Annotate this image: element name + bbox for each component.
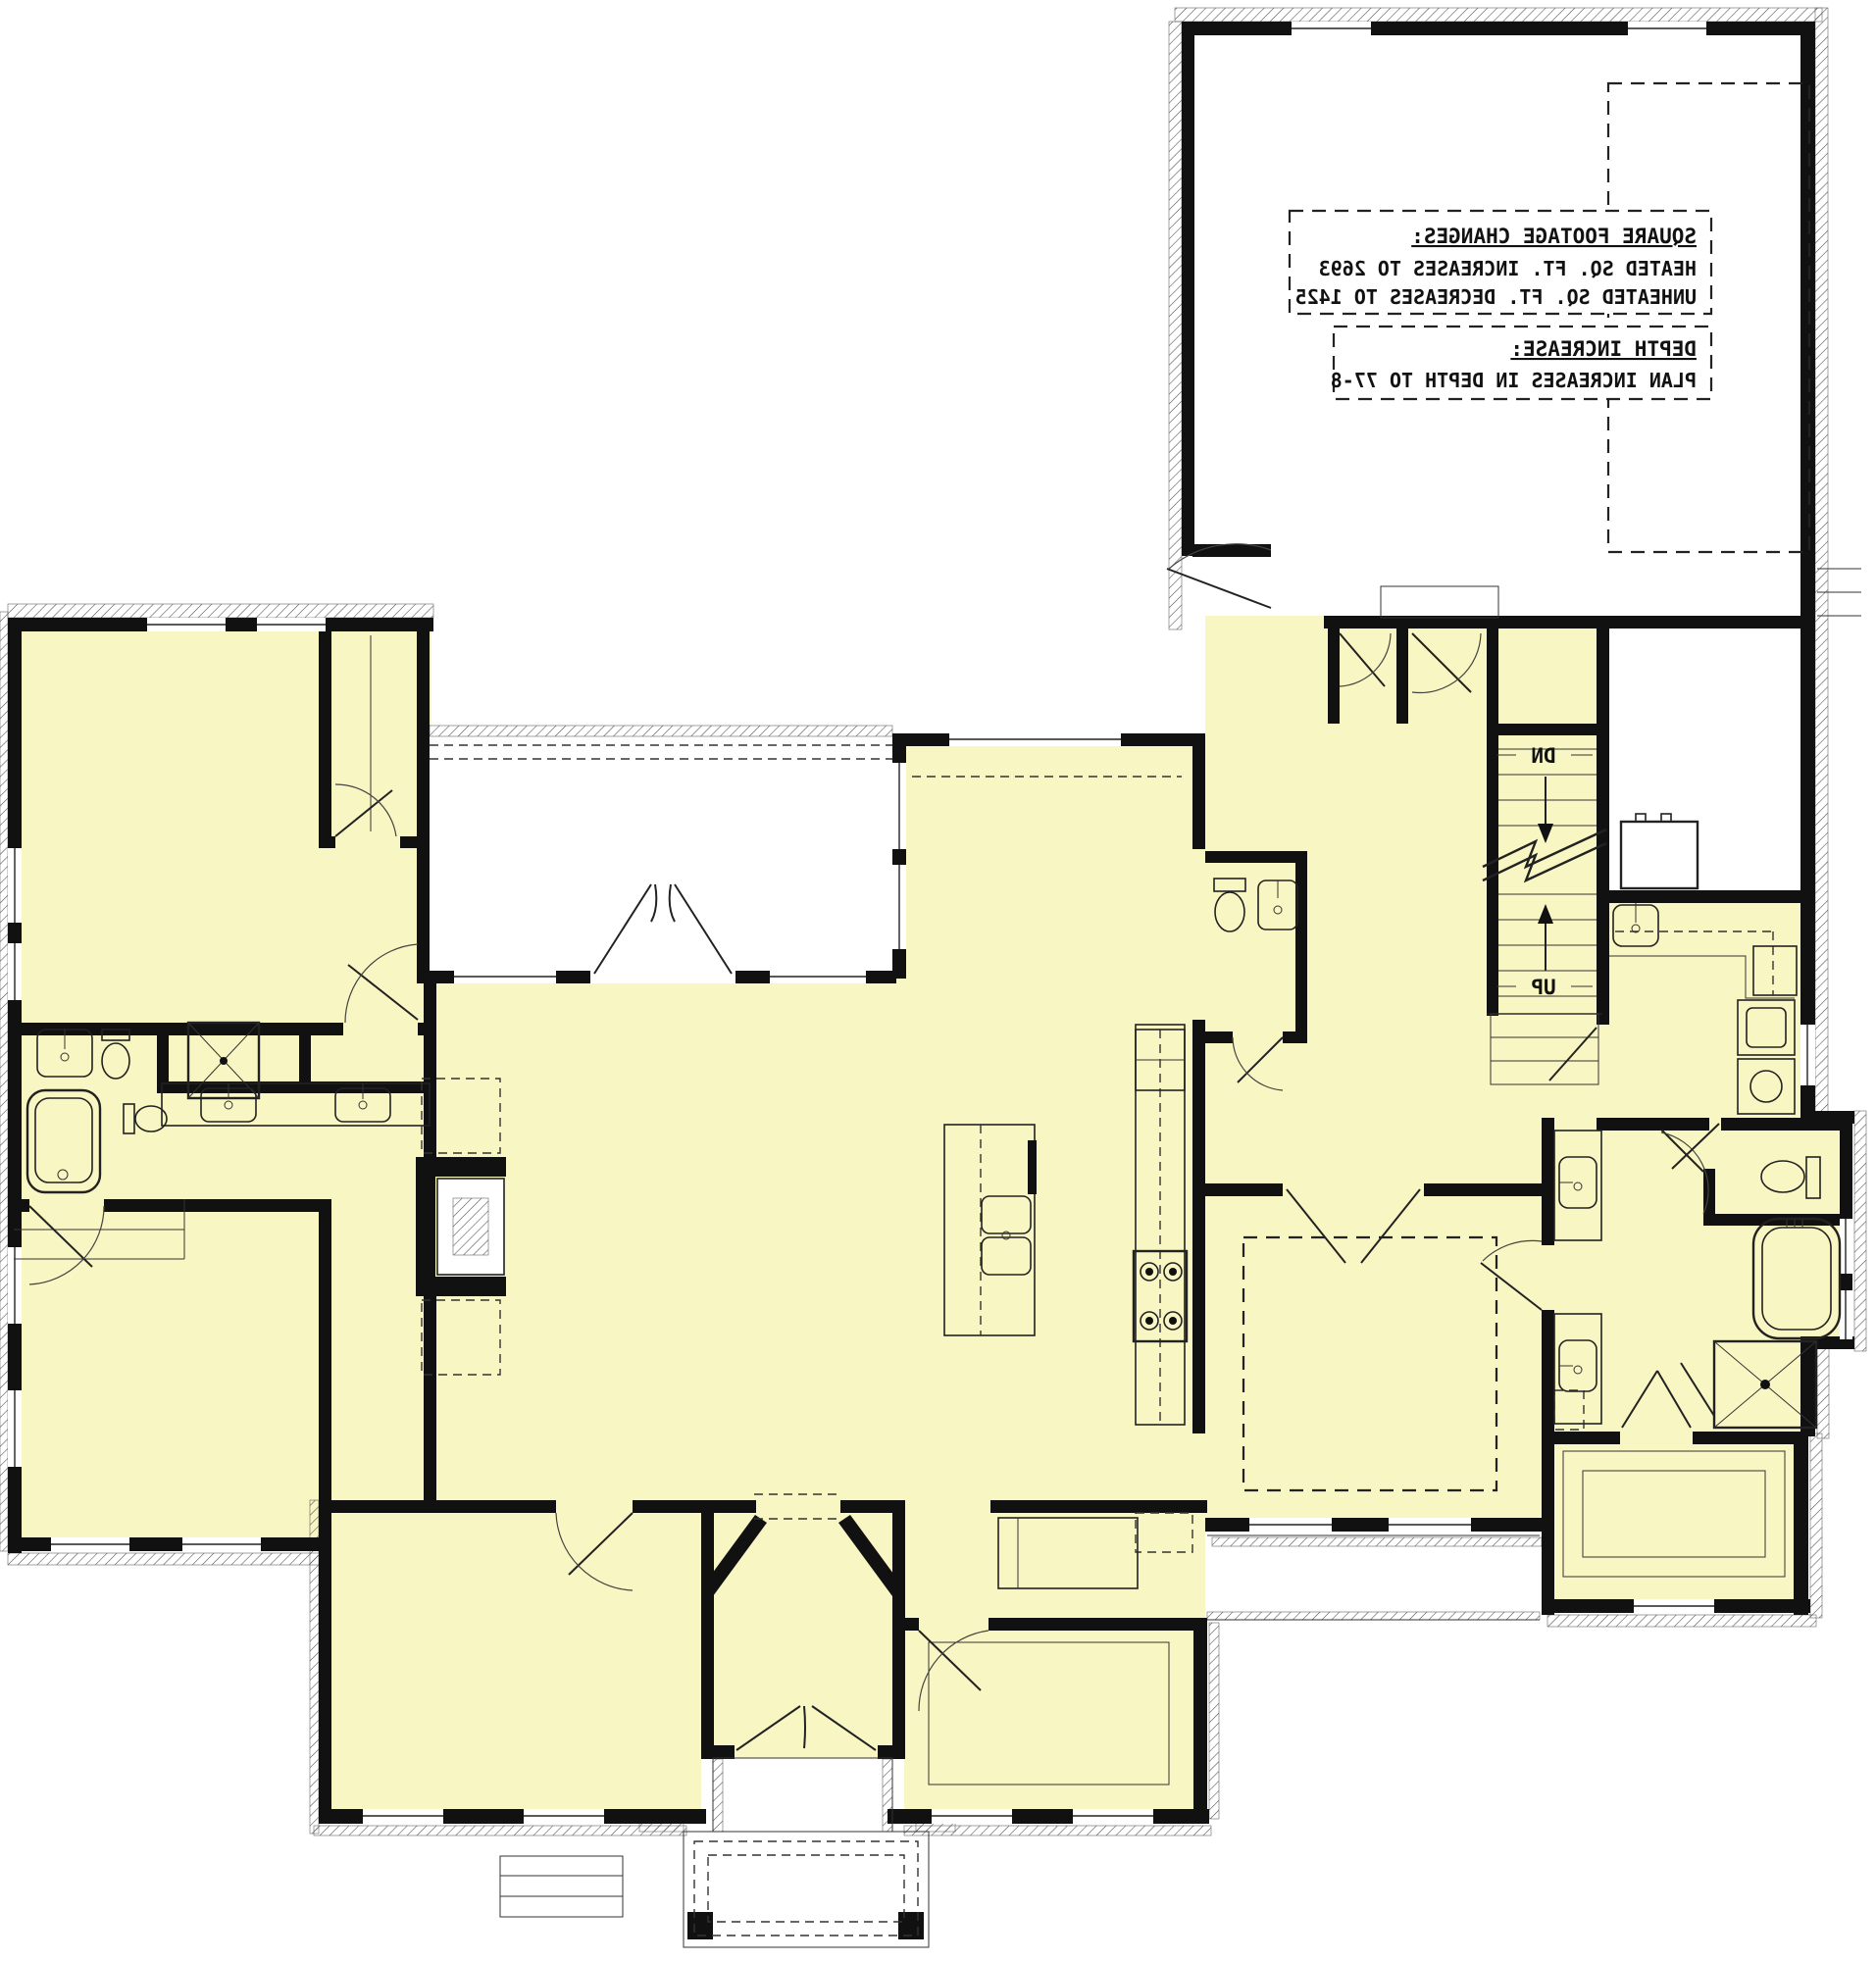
window: [363, 1809, 443, 1824]
window: [770, 971, 866, 983]
window: [1840, 1290, 1852, 1339]
window: [8, 1390, 22, 1467]
depth-line1: PLAN INCREASES IN DEPTH TO 77-8: [1331, 369, 1697, 392]
window: [147, 618, 226, 631]
svg-text:UP: UP: [1531, 976, 1555, 999]
window: [1249, 1518, 1332, 1532]
window: [932, 1809, 1012, 1824]
garage-area: [1189, 29, 1806, 616]
sqft-line1: HEATED SQ. FT. INCREASES TO 2693: [1319, 257, 1697, 280]
depth-increase-box: DEPTH INCREASE: PLAN INCREASES IN DEPTH …: [1331, 327, 1711, 399]
depth-heading: DEPTH INCREASE:: [1510, 337, 1697, 361]
window: [892, 763, 906, 849]
window: [8, 848, 22, 923]
window: [524, 1809, 604, 1824]
window: [1800, 1025, 1815, 1085]
floor-plan-page: DN UP: [0, 0, 1876, 1961]
french-door-opening: [590, 971, 735, 983]
square-footage-box: SQUARE FOOTAGE CHANGES: HEATED SQ. FT. I…: [1290, 211, 1711, 314]
window: [182, 1537, 261, 1551]
window: [1634, 1599, 1714, 1613]
rear-porch: [430, 726, 892, 971]
sqft-heading: SQUARE FOOTAGE CHANGES:: [1411, 225, 1697, 248]
mechanical-room: [1602, 628, 1808, 897]
window: [1840, 1219, 1852, 1274]
stair-dn-label: DN: [1531, 744, 1555, 768]
front-porch-recess: [713, 1758, 892, 1832]
stair-up-label: UP: [1531, 976, 1555, 999]
window: [1073, 1809, 1153, 1824]
sqft-line2: UNHEATED SQ. FT. DECREASES TO 1425: [1295, 285, 1697, 309]
window: [1389, 1518, 1471, 1532]
window: [454, 971, 556, 983]
window: [8, 943, 22, 1000]
window: [257, 618, 326, 631]
floor-plan-drawing: DN UP: [0, 0, 1876, 1961]
window: [949, 733, 1121, 746]
window: [1628, 22, 1706, 35]
window: [1292, 22, 1371, 35]
svg-text:DN: DN: [1531, 744, 1555, 768]
front-porch-slab: [684, 1832, 929, 1947]
window: [51, 1537, 129, 1551]
window: [892, 865, 906, 949]
